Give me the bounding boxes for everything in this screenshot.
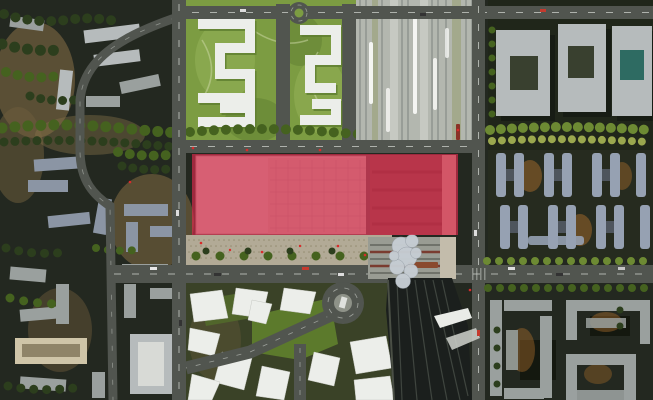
site-highlight-overlay[interactable]	[192, 154, 458, 235]
residential-bar-buildings	[488, 150, 653, 260]
southern-development	[186, 280, 394, 400]
campus-blocks	[488, 0, 653, 150]
highway-roundabout	[322, 282, 364, 324]
west-arterial-road	[172, 0, 186, 400]
park-south-road	[186, 140, 472, 153]
esplanade-plaza	[186, 235, 392, 265]
aerial-map	[0, 0, 653, 400]
masterplan-screenshot	[0, 0, 653, 400]
